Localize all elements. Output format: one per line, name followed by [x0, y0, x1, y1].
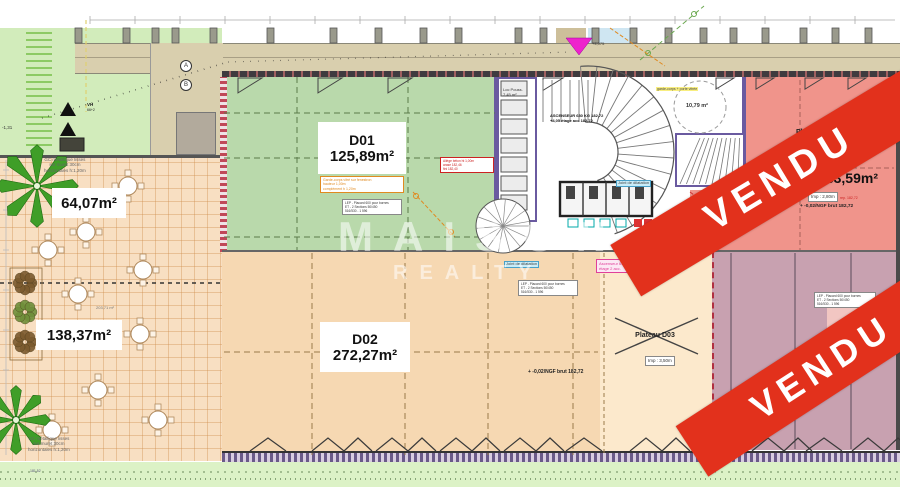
label-d05-ngf: + -0,02/NGF brut 182,72	[800, 204, 853, 210]
column-post	[700, 28, 707, 43]
d02-name: D02	[320, 331, 410, 347]
gc-note-bottom: GC métallique lisses sur muret 30cm hori…	[28, 436, 70, 452]
label-terrace-lower: 138,37m²	[36, 320, 122, 350]
column-post	[800, 28, 807, 43]
hall-bottom-wall	[222, 250, 900, 252]
column-post	[865, 28, 872, 43]
top-tan-block	[556, 28, 586, 43]
column-post	[455, 28, 462, 43]
main-top-wall	[222, 71, 900, 77]
d02-area: 272,27m²	[320, 347, 410, 364]
floor-plan-canvas: MAISON REALTY D01 125,89m² D02 272,27m² …	[0, 0, 900, 500]
left-hatched-wall	[220, 77, 227, 252]
column-post	[540, 28, 547, 43]
neg-level-label: -1,31	[2, 125, 12, 130]
note-line: complément h 1,20m	[323, 187, 401, 191]
column-post	[420, 28, 427, 43]
vh-label: VH	[87, 102, 93, 107]
elevator-note-black: ASCENSEUR 630 KG 182,72 +4,05 étage acc …	[550, 114, 603, 124]
label-d02-ngf: + -0,02/NGF brut 182,72	[528, 369, 583, 375]
cyan-label-1: Joint de dilatation	[504, 261, 539, 268]
landscape-hatch	[26, 32, 52, 150]
note-line: sur muret 30cm	[28, 441, 70, 446]
note-line: sur muret 30cm	[44, 162, 86, 167]
label-plateau-d03: Plateau D03	[622, 332, 688, 340]
red-note-box: Allège béton ht 1,00m arase 182,46 fini …	[440, 157, 494, 173]
note-line: horizontales h:1,20m	[44, 168, 86, 173]
bottom-green-strip	[0, 462, 900, 487]
label-d03-imp: Imp : 3,50m	[645, 356, 675, 366]
d01-area: 125,89m²	[318, 148, 406, 165]
note-line: +4,05 étage acc 182,72	[550, 119, 603, 124]
red-note-small: rep. 182,72	[840, 196, 858, 200]
yellow-note: garde-corps + porte vitrée	[656, 87, 698, 91]
note-line: 7,45 m²	[503, 93, 523, 98]
column-post	[762, 28, 769, 43]
gc-note-top: GC métallique lisses sur muret 30cm hori…	[44, 157, 86, 173]
column-post	[267, 28, 274, 43]
circled-mark-a: A	[180, 60, 192, 72]
label-stair-room-area: 10,79 m²	[686, 103, 708, 110]
terrace-mid-area: 203,71 m²	[96, 306, 114, 311]
level-top-label: +4,075	[592, 42, 604, 47]
note-line: fini 182,40	[443, 167, 491, 171]
orange-note-box: Garde-corps vitré sur fenestron hauteur …	[320, 176, 404, 193]
column-post	[730, 28, 737, 43]
column-post	[832, 28, 839, 43]
cyan-label-2: Joint de dilatation	[616, 180, 651, 187]
d01-name: D01	[318, 132, 406, 148]
survey-node	[692, 12, 697, 17]
column-post	[515, 28, 522, 43]
column-post	[665, 28, 672, 43]
vh-sub-label: 66+2	[87, 108, 95, 112]
cabinet-note-1: LEP - Placard 600 pour bornes ET - 2 Sec…	[342, 199, 402, 215]
circled-mark-b: B	[180, 79, 192, 91]
note-line: horizontales h:1,20m	[28, 447, 70, 452]
walkway-gray-block	[176, 112, 216, 155]
column-post	[375, 28, 382, 43]
label-loc-pouss: Loc Pouss. 7,45 m²	[503, 88, 523, 98]
label-d01: D01 125,89m²	[318, 122, 406, 174]
column-post	[330, 28, 337, 43]
label-d02: D02 272,27m²	[320, 322, 410, 372]
green-dim: 181,52	[30, 469, 41, 473]
cabinet-note-2: LEP - Placard 600 pour bornes ET - 2 Sec…	[518, 280, 578, 296]
label-terrace-upper: 64,07m²	[52, 188, 126, 218]
note-line: 516/530 - 1 596	[345, 209, 399, 213]
note-line: 516/530 - 1 596	[521, 290, 575, 294]
stroller-room	[497, 77, 537, 222]
